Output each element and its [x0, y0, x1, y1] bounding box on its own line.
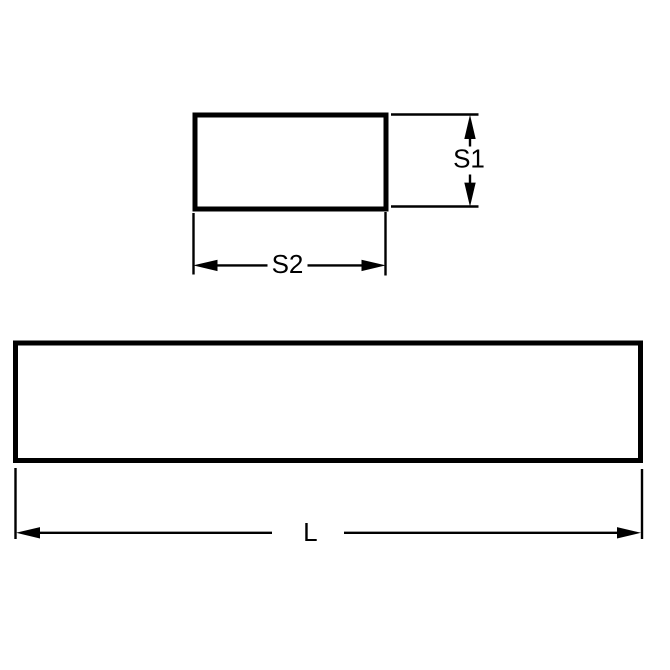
svg-text:S2: S2 [272, 249, 304, 279]
svg-text:L: L [303, 517, 317, 547]
svg-text:S1: S1 [453, 144, 485, 174]
